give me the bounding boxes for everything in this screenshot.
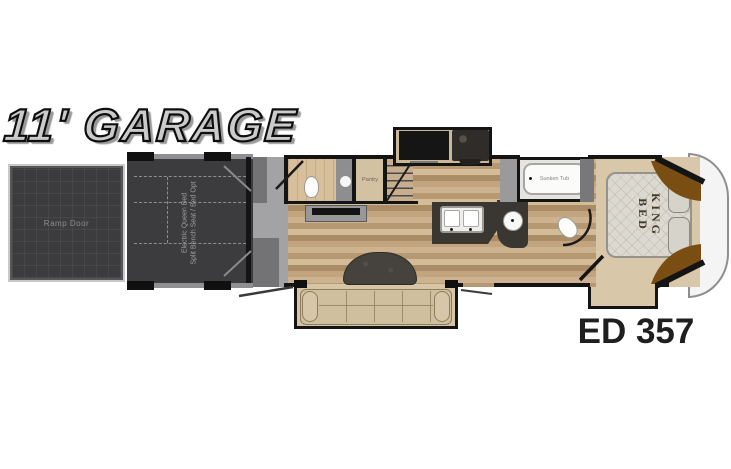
interior-wall [284,157,288,204]
sofa-cushions [319,291,433,322]
slideout-bracket [445,280,458,288]
model-number: ED 357 [556,312,716,352]
entry-door-line [239,287,293,296]
exterior-wall [588,155,662,159]
sunken-tub: Sunken Tub [523,163,586,195]
bedroom-slideout [588,287,658,309]
exterior-wall [494,283,590,287]
interior-wall [352,157,356,203]
sofa-armrest [434,291,450,322]
tub-faucet-dot [529,177,532,180]
exterior-wall [284,155,396,159]
toilet-icon [304,176,319,198]
sink-icon [339,175,352,188]
king-bed-label: KING BED [606,172,692,258]
console-tv-icon [312,208,360,215]
slideout-bracket [294,280,307,288]
page-title: 11' GARAGE [2,98,299,152]
bedroom-wall-shade [580,159,594,202]
bath-wall-shade [500,159,517,202]
faucet-dot [469,228,472,231]
ramp-door-label: Ramp Door [44,219,89,228]
exterior-wall [490,155,520,159]
ramp-door: Ramp Door [10,166,123,280]
sofa-armrest [302,291,318,322]
faucet-dot [511,219,514,222]
transition-strip-shade [253,157,267,203]
exterior-wall [655,283,669,287]
pantry-label: Pantry [362,177,378,183]
transition-strip-shade-lower [253,238,279,287]
faucet-dot [450,228,453,231]
sink-basin [444,210,460,227]
tv-stand [410,161,438,163]
range-cooktop-icon [452,130,489,161]
entry-door-line [461,290,492,294]
sunken-tub-label: Sunken Tub [540,176,569,182]
tv-icon [399,131,449,160]
sink-basin [463,210,479,227]
interior-wall [383,157,387,203]
garage-bed-label: Electric Queen Bed Split Bench Seat / Be… [127,157,253,288]
oven-icon [459,159,481,165]
pantry: Pantry [356,159,384,201]
